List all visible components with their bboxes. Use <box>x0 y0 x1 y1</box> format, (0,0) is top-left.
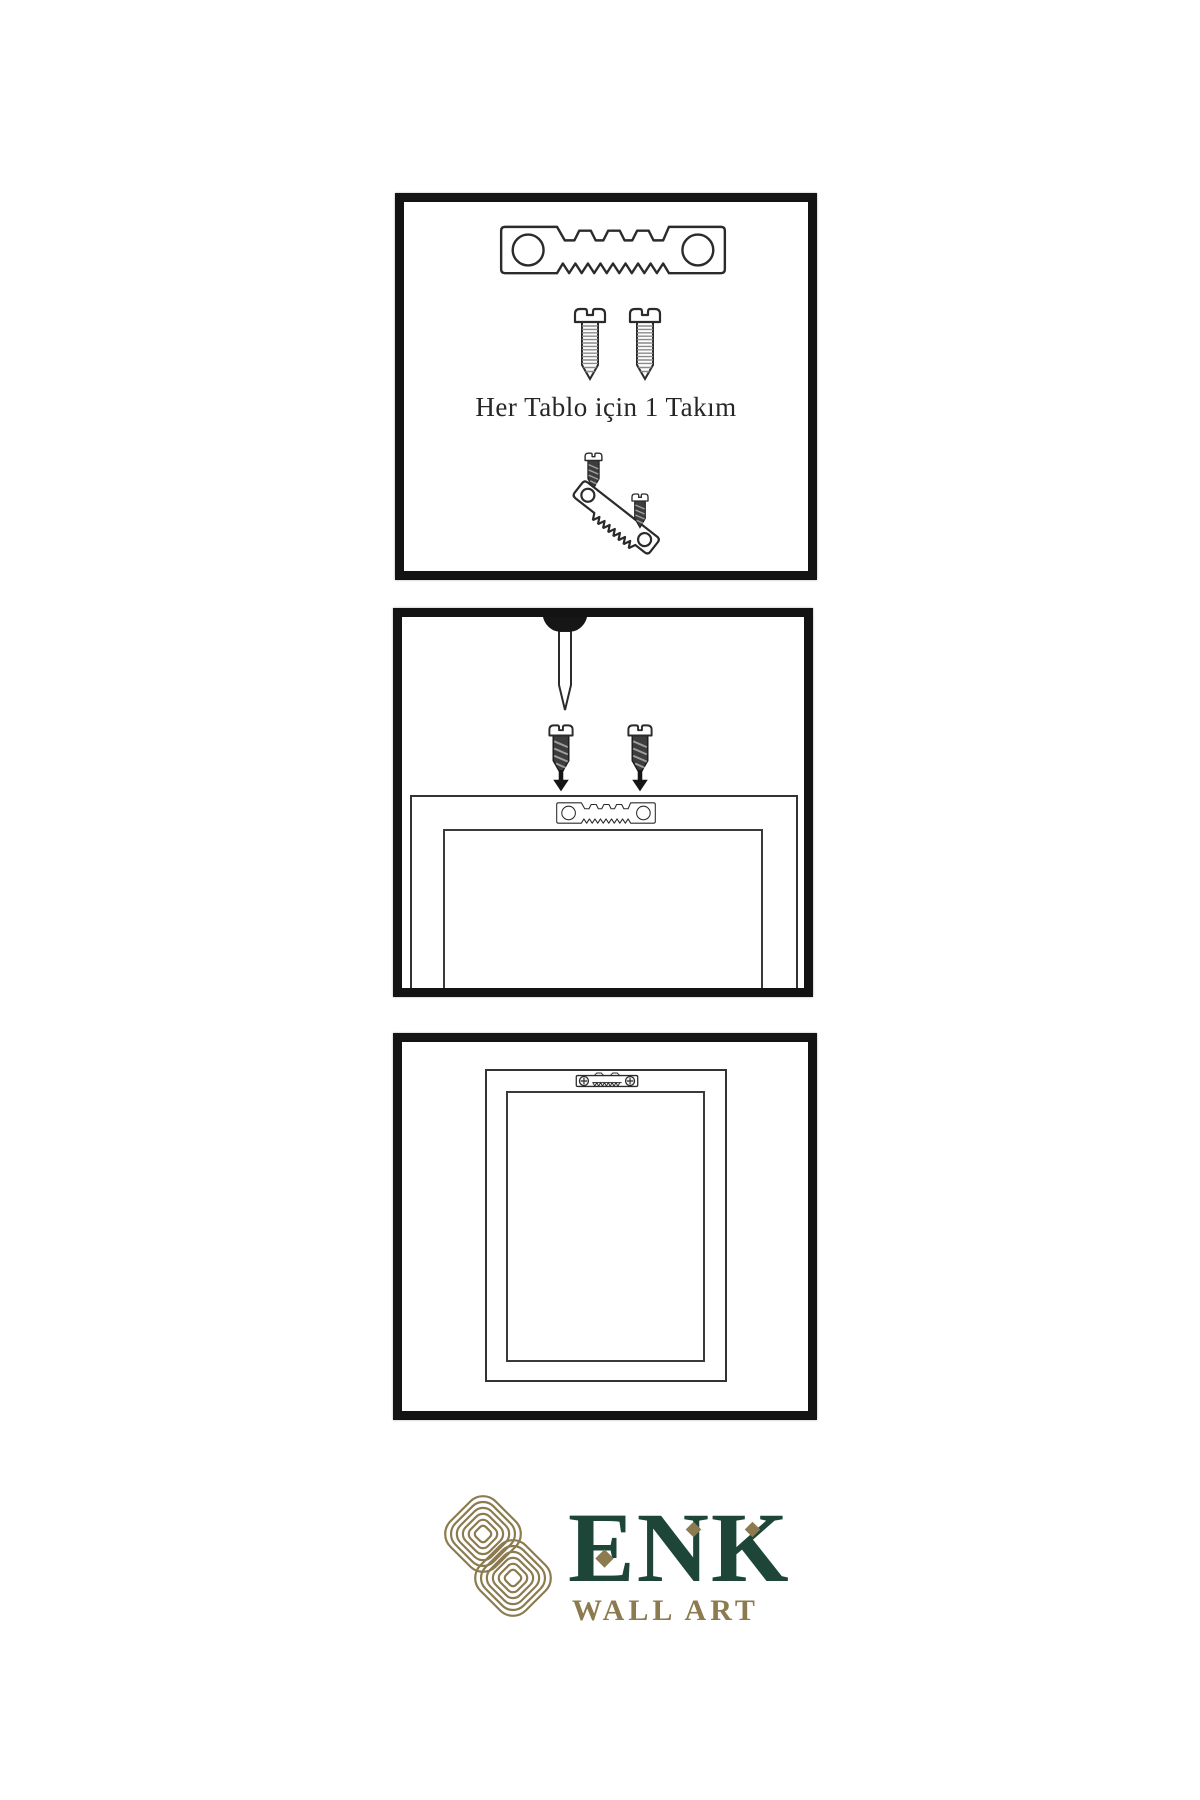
sawtooth-hanger-icon <box>495 223 731 277</box>
instruction-sheet: Her Tablo için 1 Takım <box>0 0 1200 1800</box>
arrow-down-icon <box>549 770 573 792</box>
kit-caption: Her Tablo için 1 Takım <box>404 392 808 423</box>
panel-hung-frame <box>393 1033 817 1420</box>
brand-logo: ENK WALL ART <box>400 1480 820 1650</box>
brand-title: ENK <box>568 1498 791 1598</box>
screw-icon <box>627 304 663 382</box>
dark-screw-icon <box>630 491 650 531</box>
nail-icon <box>543 617 587 717</box>
panel-hardware-kit: Her Tablo için 1 Takım <box>395 193 817 580</box>
hung-frame-inner <box>506 1091 705 1362</box>
installed-hanger-icon <box>575 1072 639 1090</box>
brand-subtitle: WALL ART <box>572 1596 759 1626</box>
panel-mounting <box>393 608 813 997</box>
arrow-down-icon <box>628 770 652 792</box>
sawtooth-hanger-icon <box>555 801 657 825</box>
frame-back-inner <box>443 829 763 997</box>
screw-icon <box>572 304 608 382</box>
knot-logo-icon <box>435 1488 560 1625</box>
